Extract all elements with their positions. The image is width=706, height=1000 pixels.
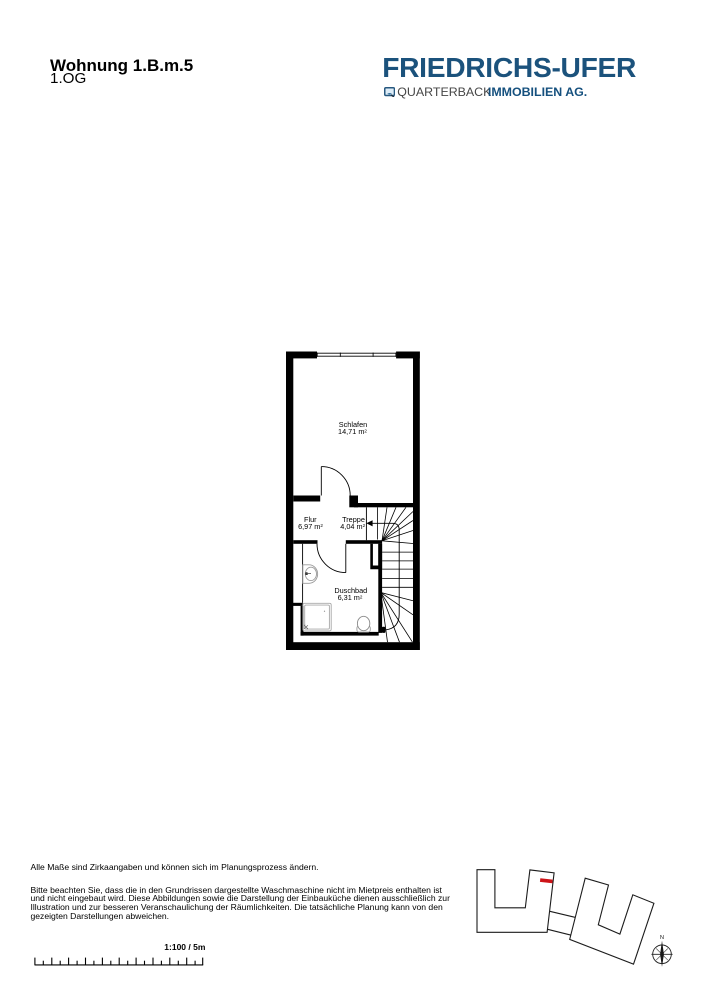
svg-text:6,97 m2: 6,97 m2	[298, 522, 323, 531]
svg-text:4,04 m2: 4,04 m2	[340, 522, 365, 531]
svg-text:6,31 m2: 6,31 m2	[338, 593, 363, 602]
svg-text:N: N	[660, 935, 664, 941]
svg-text:14,71 m2: 14,71 m2	[338, 427, 367, 436]
